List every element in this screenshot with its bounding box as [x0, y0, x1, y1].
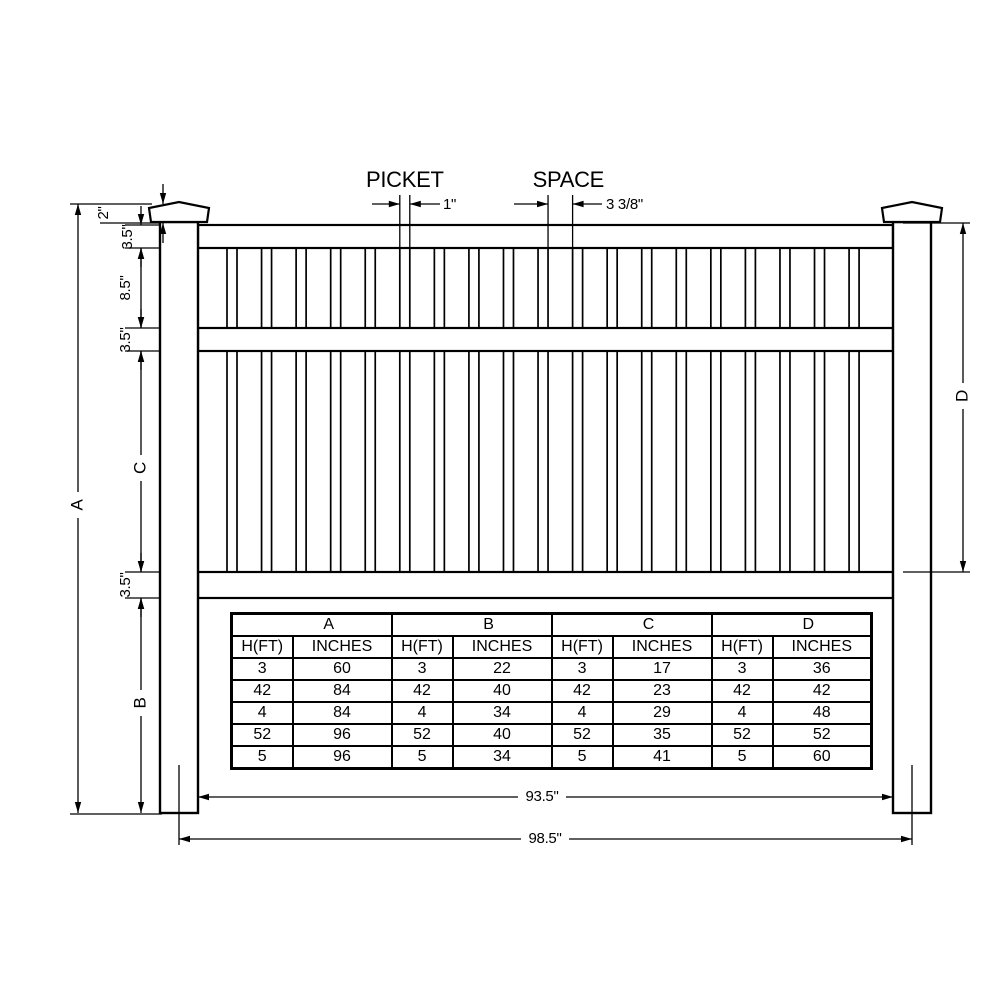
picket — [815, 248, 825, 328]
arrowhead — [537, 201, 548, 207]
picket — [607, 351, 617, 572]
arrowhead — [960, 561, 966, 572]
arrowhead — [573, 201, 584, 207]
dim-middle-rail: 3.5" — [117, 328, 134, 353]
table-cell: 29 — [613, 702, 712, 724]
picket — [262, 351, 272, 572]
arrowhead — [389, 201, 400, 207]
table-cell: 5 — [712, 746, 773, 769]
picket — [503, 248, 513, 328]
table-cell: 17 — [613, 658, 712, 680]
picket — [503, 351, 513, 572]
arrowhead — [160, 193, 166, 204]
height-dimension-table: ABCDH(FT)INCHESH(FT)INCHESH(FT)INCHESH(F… — [230, 612, 873, 770]
arrowhead — [75, 204, 81, 215]
table-cell: 5 — [392, 746, 453, 769]
dim-98-5: 98.5" — [528, 830, 561, 847]
table-cell: 23 — [613, 680, 712, 702]
table-cell: 48 — [773, 702, 872, 724]
picket — [296, 351, 306, 572]
table-cell: 84 — [293, 680, 392, 702]
bottom-dimensions: 93.5"98.5" — [179, 765, 912, 848]
picket — [573, 351, 583, 572]
table-cell: 4 — [552, 702, 613, 724]
picket — [815, 351, 825, 572]
arrowhead — [901, 836, 912, 842]
left-dimensions: A2"3.5"8.5"3.5"C3.5"B — [67, 184, 166, 814]
picket — [642, 248, 652, 328]
dim-c: C — [130, 462, 149, 474]
table-cell: 3 — [712, 658, 773, 680]
picket — [400, 351, 410, 572]
dim-upper-pickets: 8.5" — [117, 276, 134, 301]
table-cell: 42 — [392, 680, 453, 702]
table-cell: 84 — [293, 702, 392, 724]
picket — [780, 351, 790, 572]
picket — [849, 351, 859, 572]
picket-width-dim: 1" — [443, 196, 456, 213]
table-cell: 34 — [453, 746, 552, 769]
picket — [711, 351, 721, 572]
picket — [745, 248, 755, 328]
table-cell: 42 — [712, 680, 773, 702]
table-cell: 60 — [293, 658, 392, 680]
table-cell: 22 — [453, 658, 552, 680]
table-cell: 3 — [392, 658, 453, 680]
table-cell: 34 — [453, 702, 552, 724]
table-sub-header: H(FT) — [232, 636, 293, 658]
picket — [745, 351, 755, 572]
top-rail — [198, 225, 893, 248]
table-sub-header: H(FT) — [392, 636, 453, 658]
table-sub-header: INCHES — [773, 636, 872, 658]
table-cell: 60 — [773, 746, 872, 769]
dim-b: B — [130, 697, 149, 708]
table-cell: 40 — [453, 724, 552, 746]
fence-spec-diagram: PICKET1"SPACE3 3/8"A2"3.5"8.5"3.5"C3.5"B… — [0, 0, 1000, 1000]
arrowhead — [138, 561, 144, 572]
arrowhead — [138, 317, 144, 328]
arrowhead — [138, 248, 144, 259]
picket — [676, 248, 686, 328]
picket — [469, 248, 479, 328]
picket — [711, 248, 721, 328]
picket — [262, 248, 272, 328]
table-cell: 42 — [552, 680, 613, 702]
dim-cap-2in: 2" — [95, 206, 112, 219]
picket — [296, 248, 306, 328]
table-sub-header: INCHES — [293, 636, 392, 658]
top-dimensions: PICKET1"SPACE3 3/8" — [366, 167, 643, 247]
table-cell: 96 — [293, 746, 392, 769]
arrowhead — [138, 351, 144, 362]
picket — [573, 248, 583, 328]
table-cell: 35 — [613, 724, 712, 746]
table-sub-header: INCHES — [613, 636, 712, 658]
right-post — [893, 222, 931, 813]
picket — [365, 351, 375, 572]
table-cell: 42 — [773, 680, 872, 702]
picket — [331, 351, 341, 572]
picket — [331, 248, 341, 328]
table-cell: 96 — [293, 724, 392, 746]
picket — [227, 248, 237, 328]
table-cell: 4 — [712, 702, 773, 724]
table-cell: 52 — [773, 724, 872, 746]
table-cell: 52 — [232, 724, 293, 746]
table-cell: 36 — [773, 658, 872, 680]
table-group-header: B — [392, 614, 552, 637]
dim-top-rail: 3.5" — [119, 225, 136, 250]
size-table-container: ABCDH(FT)INCHESH(FT)INCHESH(FT)INCHESH(F… — [230, 612, 873, 770]
dim-a: A — [67, 499, 86, 511]
table-sub-header: INCHES — [453, 636, 552, 658]
table-cell: 42 — [232, 680, 293, 702]
picket-label: PICKET — [366, 167, 444, 192]
picket — [434, 248, 444, 328]
dim-bottom-rail: 3.5" — [117, 573, 134, 598]
arrowhead — [179, 836, 190, 842]
table-cell: 3 — [232, 658, 293, 680]
table-group-header: A — [232, 614, 392, 637]
dim-d: D — [952, 390, 971, 402]
left-post-cap — [149, 202, 209, 222]
table-sub-header: H(FT) — [552, 636, 613, 658]
right-post-cap — [882, 202, 942, 222]
arrowhead — [882, 794, 893, 800]
table-cell: 5 — [232, 746, 293, 769]
table-cell: 52 — [712, 724, 773, 746]
arrowhead — [410, 201, 421, 207]
middle-rail — [198, 328, 893, 351]
arrowhead — [198, 794, 209, 800]
picket — [400, 248, 410, 328]
picket — [227, 351, 237, 572]
picket — [642, 351, 652, 572]
table-group-header: C — [552, 614, 712, 637]
space-width-dim: 3 3/8" — [606, 196, 643, 213]
table-cell: 52 — [552, 724, 613, 746]
picket — [538, 248, 548, 328]
picket — [607, 248, 617, 328]
table-cell: 5 — [552, 746, 613, 769]
arrowhead — [75, 802, 81, 813]
picket — [676, 351, 686, 572]
dim-93-5: 93.5" — [525, 788, 558, 805]
table-cell: 40 — [453, 680, 552, 702]
arrowhead — [960, 223, 966, 234]
picket — [434, 351, 444, 572]
arrowhead — [138, 802, 144, 813]
table-cell: 3 — [552, 658, 613, 680]
fence-drawing: PICKET1"SPACE3 3/8"A2"3.5"8.5"3.5"C3.5"B… — [0, 0, 1000, 1000]
table-cell: 41 — [613, 746, 712, 769]
picket — [538, 351, 548, 572]
table-group-header: D — [712, 614, 872, 637]
picket — [365, 248, 375, 328]
table-sub-header: H(FT) — [712, 636, 773, 658]
table-cell: 4 — [232, 702, 293, 724]
table-cell: 52 — [392, 724, 453, 746]
picket — [469, 351, 479, 572]
left-post — [160, 222, 198, 813]
arrowhead — [138, 598, 144, 609]
space-label: SPACE — [533, 167, 604, 192]
picket — [849, 248, 859, 328]
bottom-rail — [198, 572, 893, 598]
picket — [780, 248, 790, 328]
table-cell: 4 — [392, 702, 453, 724]
